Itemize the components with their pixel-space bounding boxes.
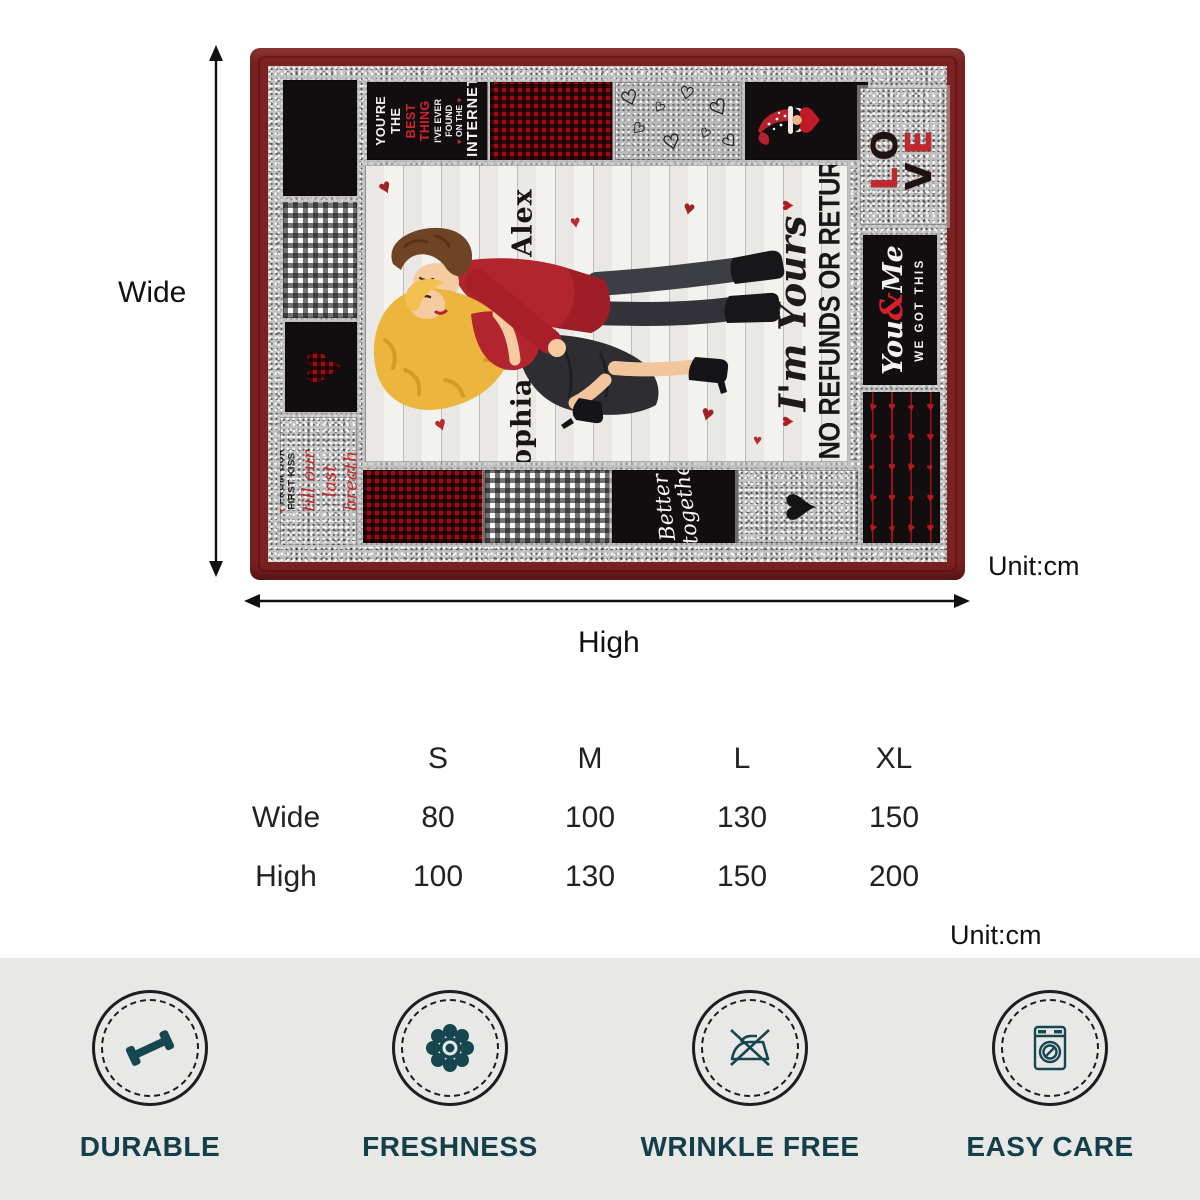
heart-outline-icon: ♡ <box>627 118 649 140</box>
gnome-icon <box>757 88 857 154</box>
feature-durable: DURABLE <box>0 958 300 1200</box>
panel-heart-leopard: ♡ ♡ ♡ ♡ ♡ ♡ ♡ ♡ <box>615 82 742 160</box>
love-marquee-text: LO VE <box>869 122 937 190</box>
product-page: Wide High Unit:cm love love love love lo… <box>0 0 1200 1200</box>
wide-dimension-arrow <box>203 44 229 578</box>
panel-better-together: Better together <box>612 470 738 543</box>
best-thing-line1: YOU'RE THE <box>374 85 404 157</box>
panel-black-heart: ♥ <box>738 470 858 543</box>
feature-wrinkle-free: WRINKLE FREE <box>600 958 900 1200</box>
panel-best-thing: YOU'RE THE BEST THING I'VE EVER FOUND ♥ … <box>367 82 488 160</box>
feature-label: DURABLE <box>80 1131 220 1163</box>
best-thing-line4: ♥ ON THE ♥ <box>454 85 464 157</box>
size-table-row-wide: Wide 80 100 130 150 <box>210 801 970 835</box>
size-col-s: S <box>362 742 514 776</box>
figure-unit-label: Unit:cm <box>988 551 1080 582</box>
feature-label: WRINKLE FREE <box>640 1131 859 1163</box>
first-kiss-script: till our last breath <box>299 443 358 520</box>
size-col-m: M <box>514 742 666 776</box>
best-thing-line3: I'VE EVER FOUND <box>433 85 454 157</box>
dumbbell-icon <box>123 1021 177 1075</box>
heart-outline-icon: ♡ <box>660 128 684 157</box>
table-unit-label: Unit:cm <box>950 920 1042 951</box>
heart-outline-icon: ♡ <box>718 129 742 154</box>
high-dimension-label: High <box>578 626 640 660</box>
better-together-script: Better together <box>648 470 702 543</box>
panel-buffalo-plaid-bottom <box>363 470 485 543</box>
heart-icon: ♥ <box>455 139 464 144</box>
heart-icon: ♥ <box>375 175 395 199</box>
heart-icon: ♥ <box>681 198 697 220</box>
marquee-letter-v: V <box>900 155 941 191</box>
no-iron-icon <box>723 1021 777 1075</box>
feature-easy-care: EASY CARE <box>900 958 1200 1200</box>
panel-you-and-me: You&Me WE GOT THIS <box>863 235 937 385</box>
feature-freshness: FRESHNESS <box>300 958 600 1200</box>
panel-gingham-bottom <box>485 470 612 543</box>
size-col-xl: XL <box>818 742 970 776</box>
feature-badge <box>392 990 508 1106</box>
feature-badge <box>92 990 208 1106</box>
plaid-heart-icon: ♥ <box>289 348 353 386</box>
heart-outline-icon: ♡ <box>650 98 668 118</box>
heart-icon: ♥ <box>752 433 762 449</box>
heart-icon: ♥ <box>455 98 464 103</box>
wide-s-value: 80 <box>362 801 514 835</box>
panel-love-marquee: LO VE <box>860 88 947 225</box>
size-table-header: S M L XL <box>210 742 970 776</box>
panel-gingham-left <box>283 202 357 318</box>
black-heart-icon: ♥ <box>768 491 828 522</box>
best-thing-line2: BEST THING <box>403 85 433 157</box>
high-xl-value: 200 <box>818 860 970 894</box>
wide-l-value: 130 <box>666 801 818 835</box>
size-col-l: L <box>666 742 818 776</box>
high-l-value: 150 <box>666 860 818 894</box>
heart-outline-icon: ♡ <box>696 124 713 143</box>
panel-gnome <box>745 82 868 160</box>
heart-outline-icon: ♡ <box>677 83 695 105</box>
high-s-value: 100 <box>362 860 514 894</box>
wide-m-value: 100 <box>514 801 666 835</box>
blanket-preview: love love love love love love love love … <box>250 48 965 580</box>
heart-outline-icon: ♡ <box>617 84 642 114</box>
panel-plaid-heart: ♥ <box>285 322 357 412</box>
you-and-me-script: You&Me <box>874 245 910 375</box>
marquee-letter-e: E <box>900 122 941 155</box>
row-label-high: High <box>210 860 362 894</box>
first-kiss-caps: ♥ FROM OUR FIRST KISS <box>280 443 298 520</box>
high-m-value: 130 <box>514 860 666 894</box>
care-features-strip: DURABLE FRESHNESS <box>0 958 1200 1200</box>
we-got-this-caps: WE GOT THIS <box>914 245 926 375</box>
row-label-wide: Wide <box>210 801 362 835</box>
panel-wood-center: Alex Sophia ♥ I'm Yours ♥ NO REFUNDS OR … <box>365 165 848 462</box>
feature-label: EASY CARE <box>966 1131 1133 1163</box>
wide-xl-value: 150 <box>818 801 970 835</box>
high-dimension-arrow <box>243 588 971 614</box>
size-table-row-high: High 100 130 150 200 <box>210 860 970 894</box>
panel-buffalo-plaid-top <box>490 82 613 160</box>
wide-dimension-label: Wide <box>118 276 186 310</box>
best-thing-line5: INTERNET <box>464 85 481 157</box>
kissing-couple-illustration <box>365 220 805 430</box>
feature-badge <box>692 990 808 1106</box>
feature-badge <box>992 990 1108 1106</box>
quote-caps-line: NO REFUNDS OR RETURNS <box>814 168 847 460</box>
heart-icon: ♥ <box>280 508 286 514</box>
heart-icon: ♥ <box>778 200 799 211</box>
washing-machine-icon <box>1023 1021 1077 1075</box>
panel-love-script: love love love love love love love love … <box>283 80 357 196</box>
feature-label: FRESHNESS <box>362 1131 538 1163</box>
size-table: S M L XL Wide 80 100 130 150 High 100 13… <box>210 742 970 919</box>
panel-heart-strings <box>863 392 940 543</box>
flower-icon <box>423 1021 477 1075</box>
heart-outline-icon: ♡ <box>705 93 734 124</box>
panel-first-kiss: ♥ FROM OUR FIRST KISS till our last brea… <box>280 417 357 545</box>
